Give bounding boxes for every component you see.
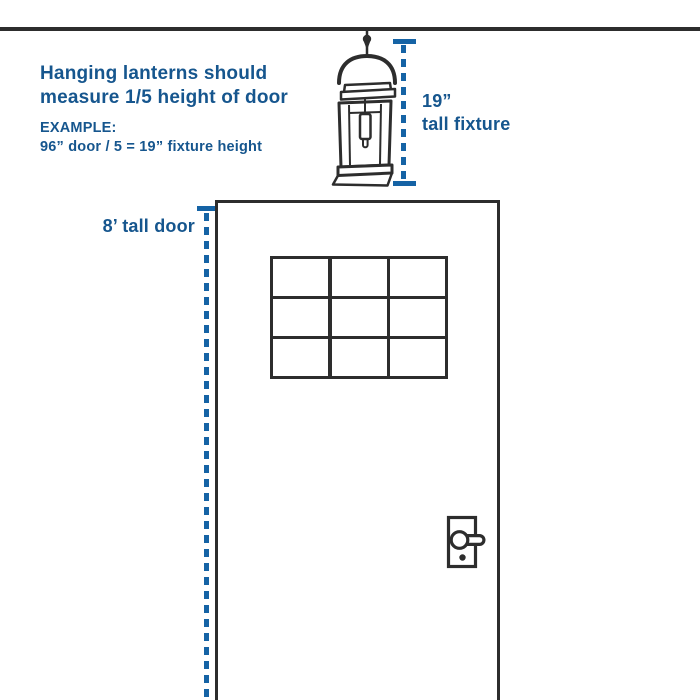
- door-measure-dashed-line: [204, 213, 209, 700]
- example-formula: 96” door / 5 = 19” fixture height: [40, 138, 262, 157]
- example-label: EXAMPLE:: [40, 119, 262, 138]
- window-pane: [332, 299, 387, 336]
- window-pane: [273, 259, 328, 296]
- lantern-sizing-diagram: Hanging lanterns should measure 1/5 heig…: [0, 0, 700, 700]
- hanging-lantern-icon: [330, 26, 410, 190]
- fixture-measure-text: tall fixture: [422, 113, 510, 136]
- door-window-grid: [270, 256, 448, 379]
- window-pane: [273, 299, 328, 336]
- fixture-measure-top-cap: [393, 39, 416, 44]
- door-measure-label: 8’ tall door: [88, 216, 195, 237]
- door-lever-handle-icon: [444, 512, 492, 576]
- window-pane: [332, 259, 387, 296]
- window-pane: [273, 339, 328, 376]
- instruction-heading: Hanging lanterns should measure 1/5 heig…: [40, 62, 288, 109]
- window-pane: [390, 299, 445, 336]
- fixture-measure-dashed-line: [401, 45, 406, 181]
- window-pane: [332, 339, 387, 376]
- fixture-measure-value: 19”: [422, 90, 510, 113]
- window-pane: [390, 259, 445, 296]
- keyhole-dot: [459, 554, 465, 560]
- window-pane: [390, 339, 445, 376]
- fixture-measure-label: 19” tall fixture: [422, 90, 510, 136]
- instruction-line-2: measure 1/5 height of door: [40, 86, 288, 110]
- instruction-line-1: Hanging lanterns should: [40, 62, 288, 86]
- instruction-example: EXAMPLE: 96” door / 5 = 19” fixture heig…: [40, 119, 262, 156]
- fixture-measure-bottom-cap: [393, 181, 416, 186]
